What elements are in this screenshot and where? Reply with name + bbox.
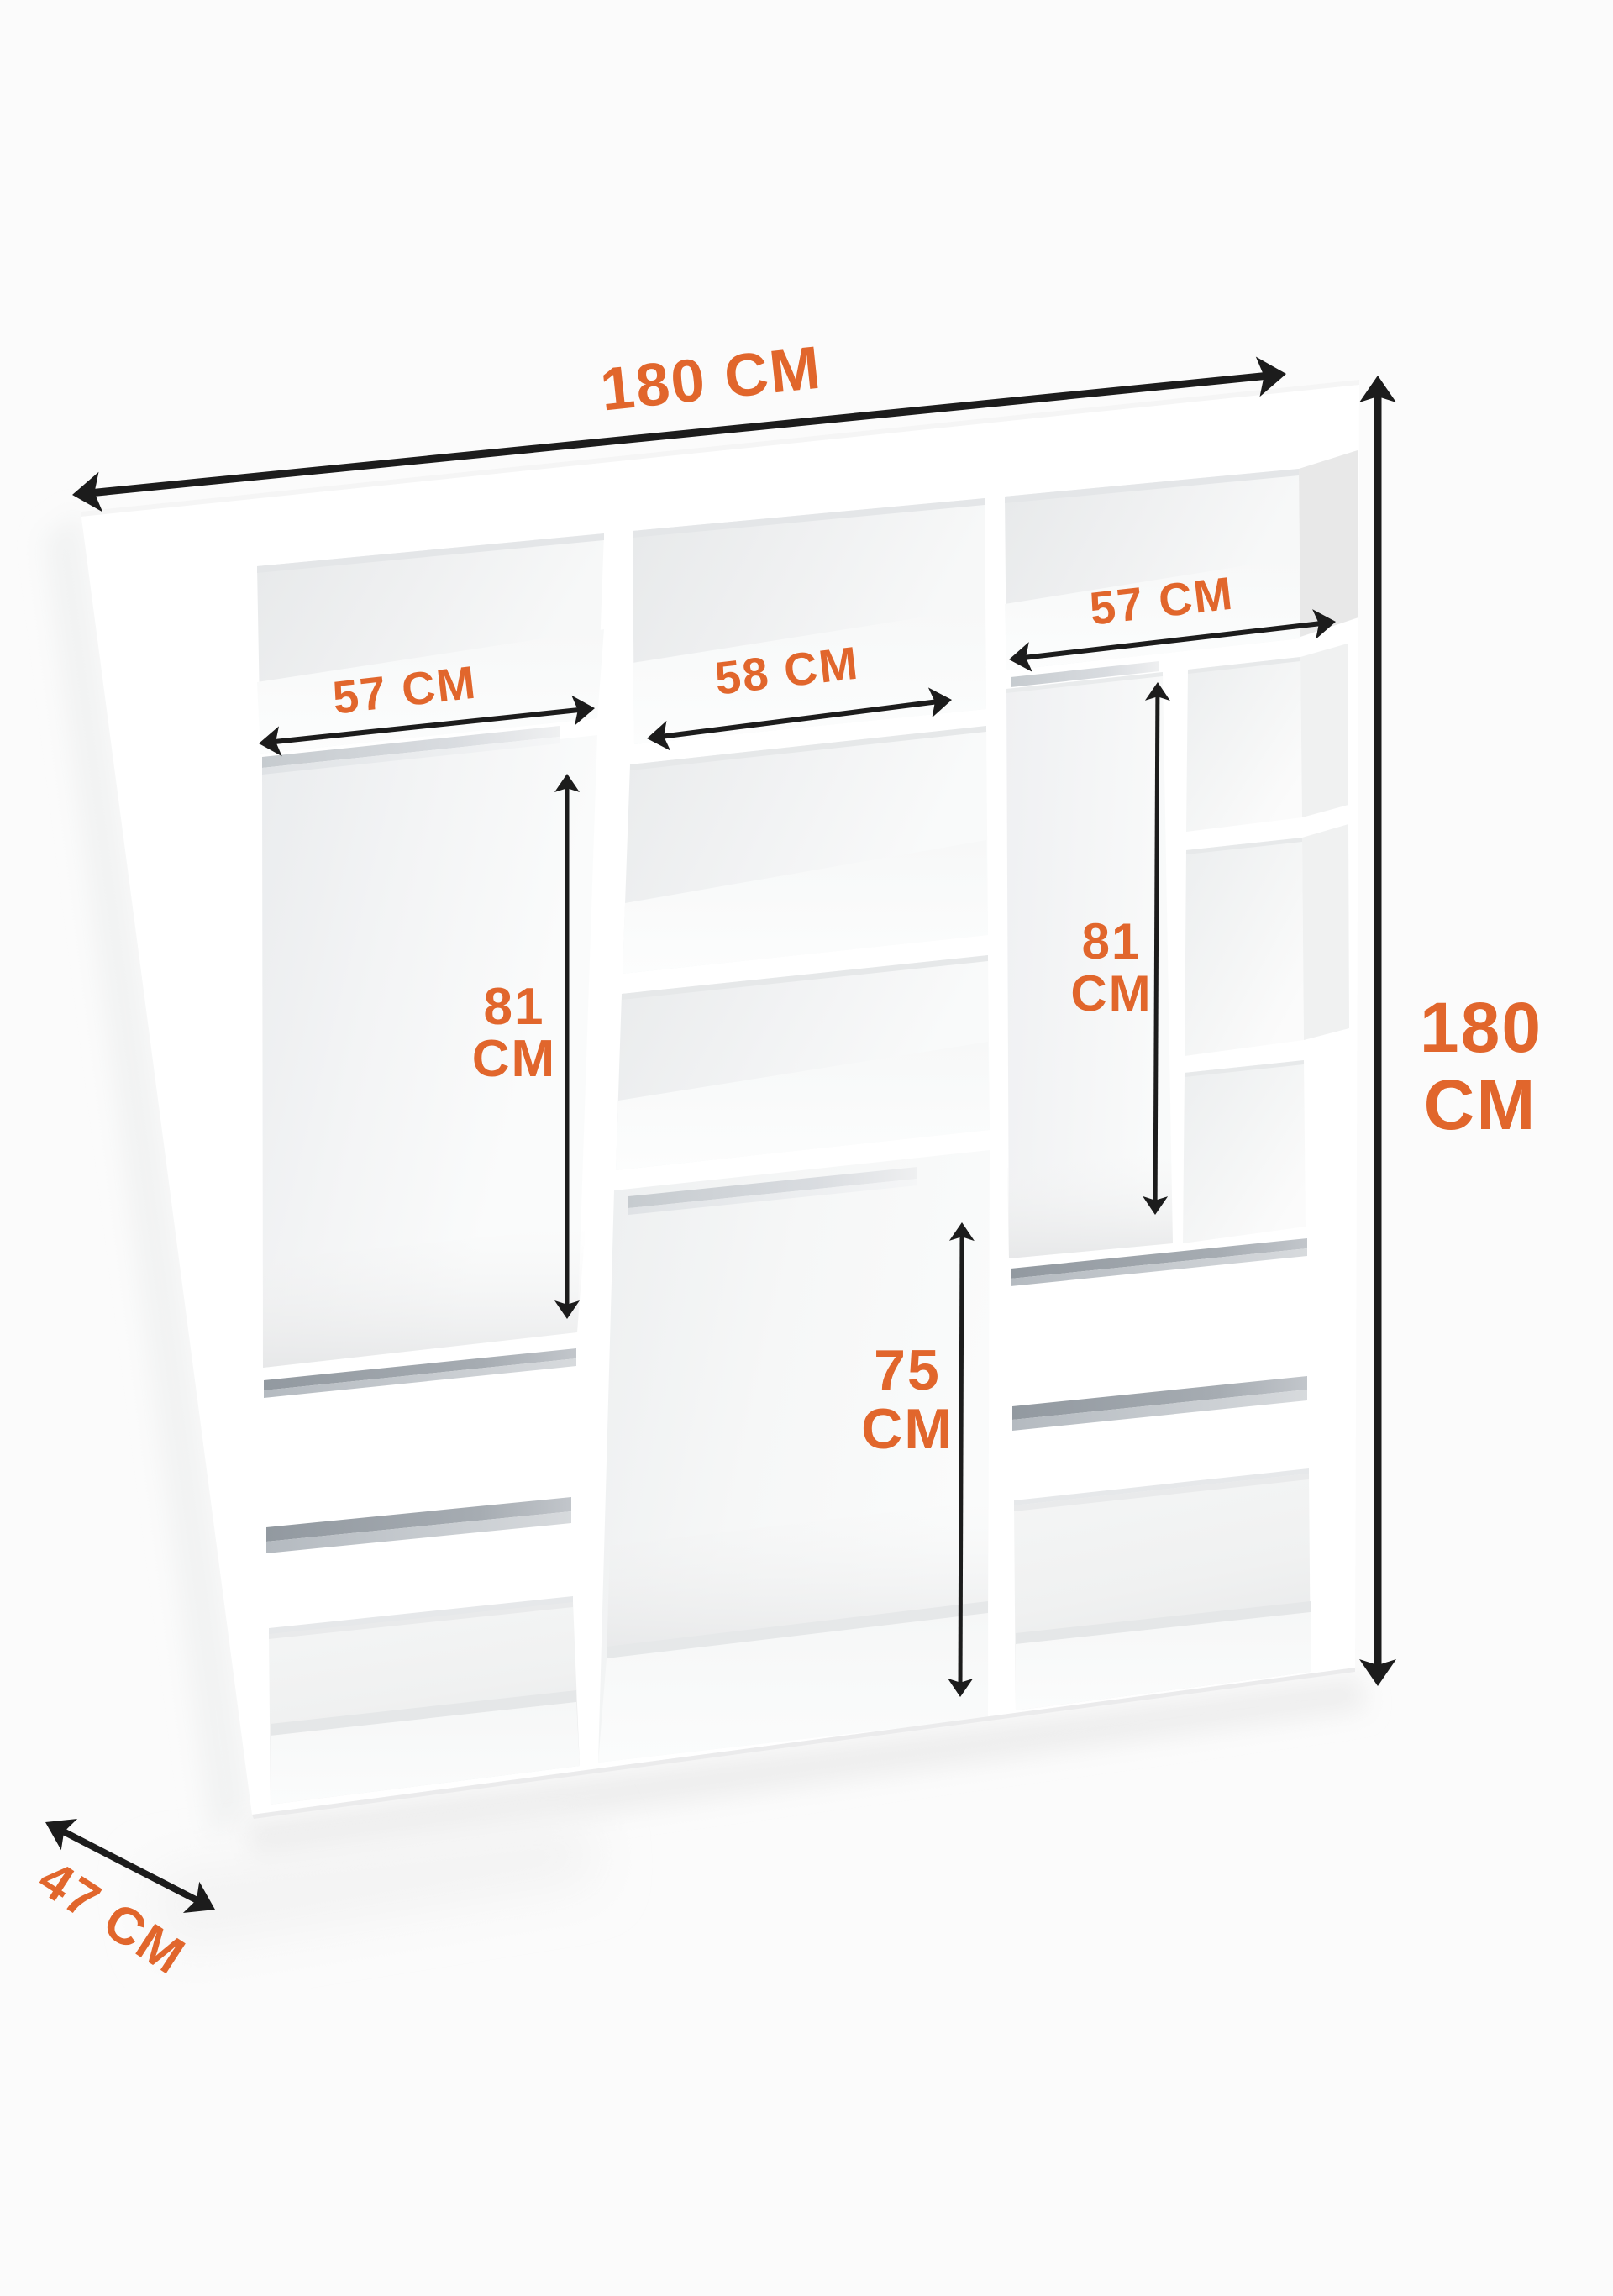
svg-text:CM: CM (472, 1030, 556, 1088)
svg-text:81: 81 (1082, 913, 1142, 969)
svg-text:CM: CM (1424, 1065, 1537, 1144)
svg-text:CM: CM (861, 1397, 954, 1461)
svg-text:81: 81 (484, 978, 545, 1036)
svg-text:180: 180 (1420, 988, 1542, 1067)
svg-text:75: 75 (874, 1338, 941, 1402)
svg-text:CM: CM (1070, 965, 1152, 1022)
